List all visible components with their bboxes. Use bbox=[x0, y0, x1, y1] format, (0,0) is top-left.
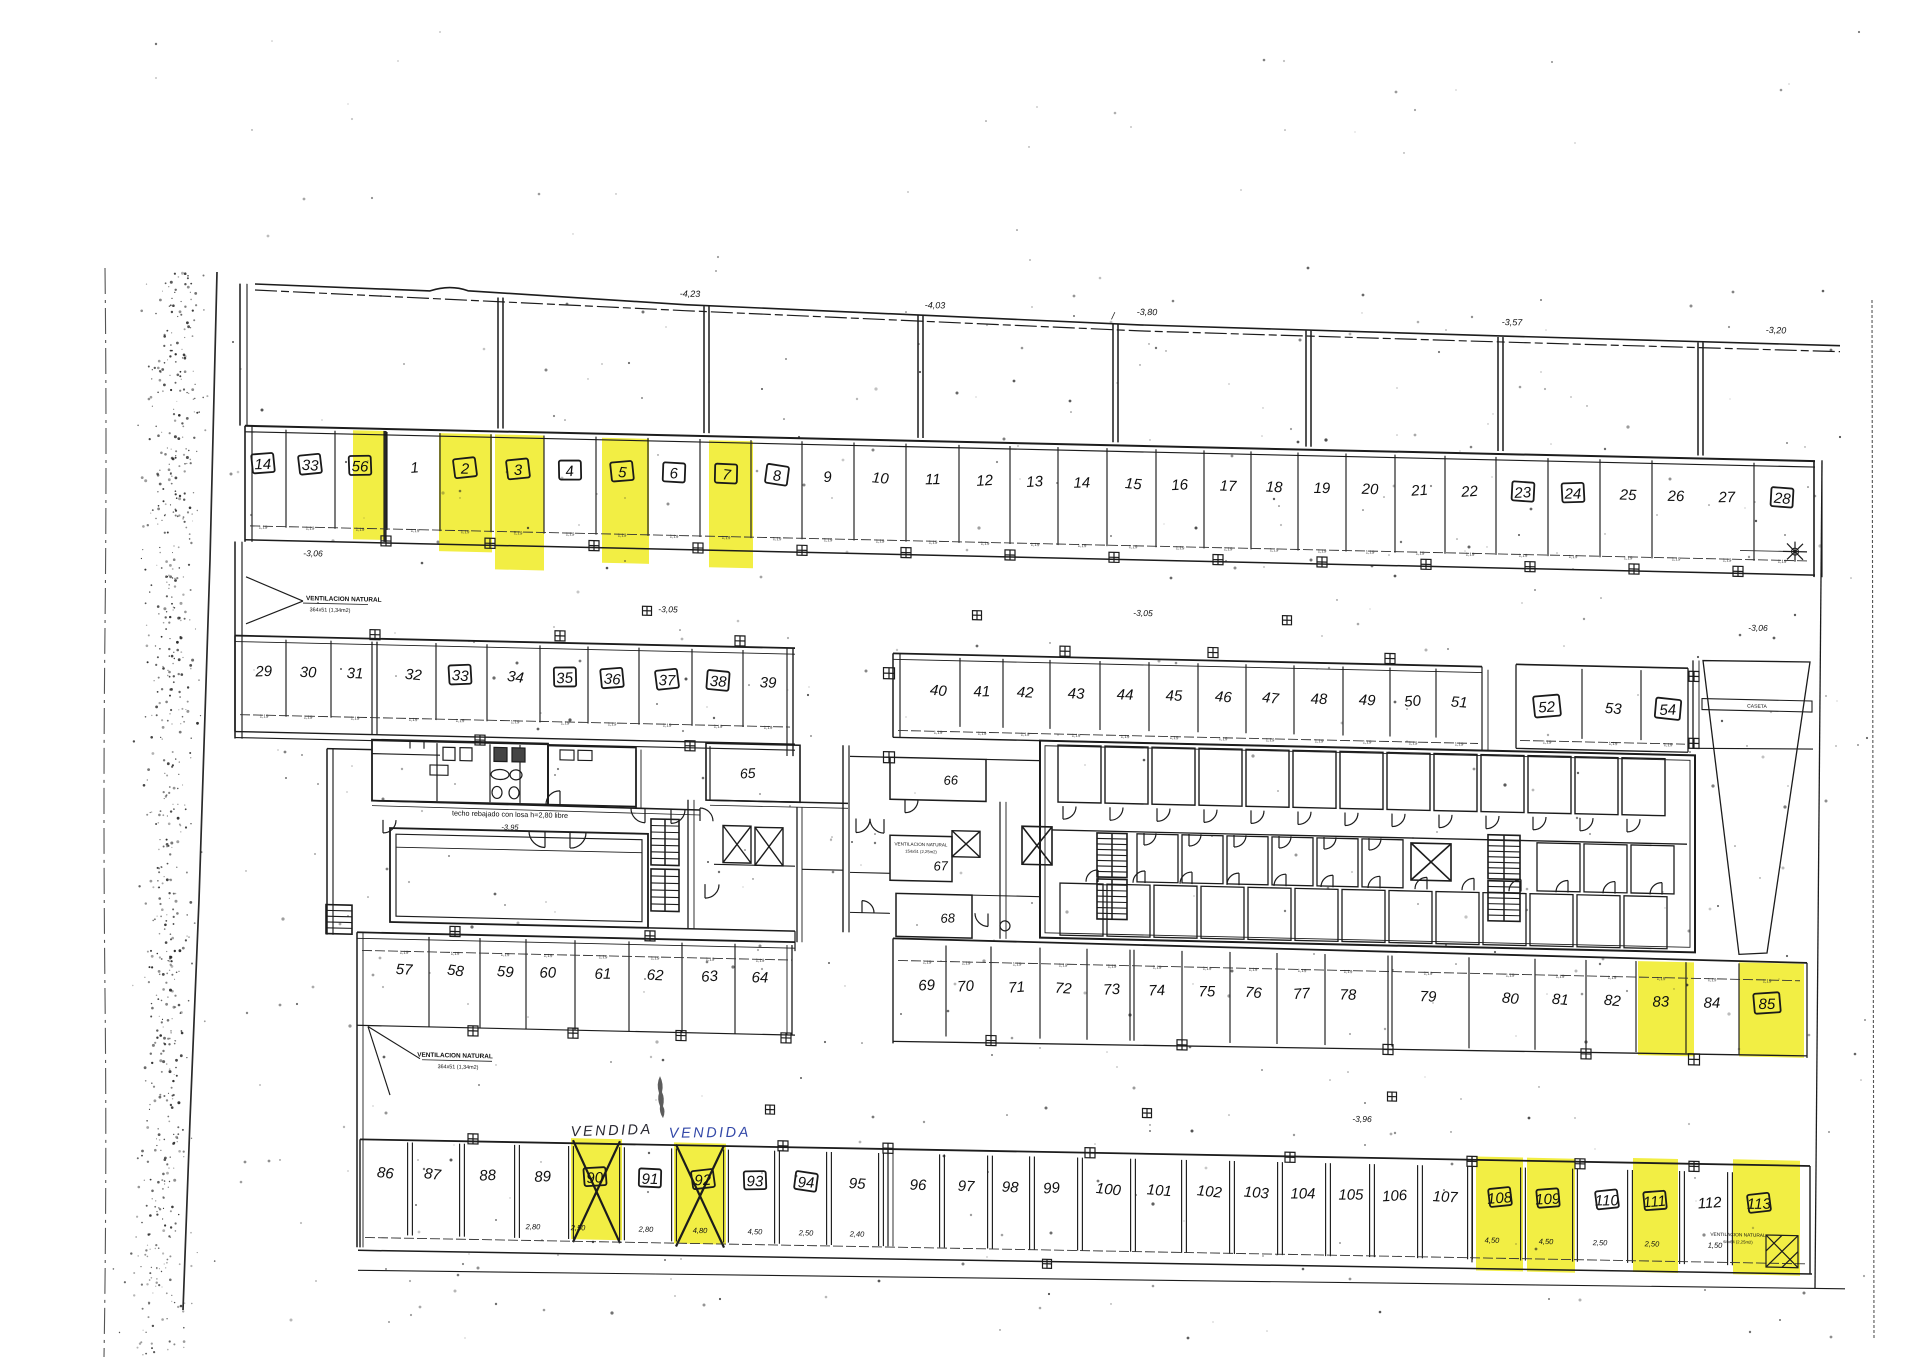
svg-text:18: 18 bbox=[1266, 479, 1284, 497]
svg-text:1,19: 1,19 bbox=[1031, 542, 1040, 547]
svg-text:1,19: 1,19 bbox=[1657, 976, 1666, 981]
svg-text:1,19: 1,19 bbox=[1298, 968, 1307, 973]
svg-text:79: 79 bbox=[1420, 988, 1438, 1006]
svg-text:28: 28 bbox=[1772, 490, 1791, 508]
svg-text:1,19: 1,19 bbox=[1129, 544, 1138, 549]
svg-text:75: 75 bbox=[1198, 983, 1216, 1000]
svg-text:1,19: 1,19 bbox=[756, 958, 765, 963]
svg-text:93: 93 bbox=[746, 1173, 764, 1190]
svg-text:1,19: 1,19 bbox=[451, 951, 460, 956]
svg-text:-3,57: -3,57 bbox=[1502, 317, 1524, 327]
svg-text:-3,05: -3,05 bbox=[1133, 608, 1153, 618]
svg-text:-3,05: -3,05 bbox=[658, 604, 678, 614]
svg-text:1,19: 1,19 bbox=[1021, 732, 1030, 737]
svg-text:1,19: 1,19 bbox=[1624, 555, 1633, 560]
svg-text:25: 25 bbox=[1619, 487, 1638, 505]
svg-text:4,50: 4,50 bbox=[1485, 1236, 1500, 1245]
svg-text:1,19: 1,19 bbox=[651, 955, 660, 960]
svg-text:88: 88 bbox=[479, 1167, 498, 1185]
svg-text:81: 81 bbox=[1551, 991, 1569, 1009]
svg-text:1,19: 1,19 bbox=[501, 952, 510, 957]
svg-text:1,19: 1,19 bbox=[356, 527, 365, 532]
svg-text:1,19: 1,19 bbox=[1072, 733, 1081, 738]
svg-text:1,19: 1,19 bbox=[962, 960, 971, 965]
svg-text:102: 102 bbox=[1196, 1182, 1223, 1202]
svg-text:1,19: 1,19 bbox=[714, 724, 723, 729]
svg-text:2: 2 bbox=[460, 461, 470, 478]
svg-text:51: 51 bbox=[1450, 694, 1467, 712]
svg-text:1,19: 1,19 bbox=[1224, 546, 1233, 551]
svg-text:1,19: 1,19 bbox=[351, 716, 360, 721]
svg-text:85: 85 bbox=[1758, 996, 1776, 1013]
svg-text:91: 91 bbox=[642, 1171, 659, 1188]
svg-text:1,19: 1,19 bbox=[400, 950, 409, 955]
svg-text:4,50: 4,50 bbox=[1539, 1237, 1554, 1246]
svg-text:1,19: 1,19 bbox=[561, 720, 570, 725]
svg-text:95: 95 bbox=[849, 1175, 867, 1193]
svg-text:1,19: 1,19 bbox=[1506, 973, 1515, 978]
svg-text:46: 46 bbox=[1214, 688, 1233, 707]
svg-text:98: 98 bbox=[1002, 1179, 1020, 1197]
svg-text:17: 17 bbox=[1220, 478, 1238, 496]
svg-text:37: 37 bbox=[659, 672, 676, 689]
svg-text:43: 43 bbox=[1068, 685, 1086, 703]
svg-text:4,50: 4,50 bbox=[748, 1227, 763, 1236]
svg-text:2,40: 2,40 bbox=[849, 1229, 865, 1238]
svg-text:14: 14 bbox=[254, 456, 271, 473]
svg-text:1,19: 1,19 bbox=[1363, 739, 1372, 744]
svg-text:1,19: 1,19 bbox=[304, 715, 313, 720]
svg-text:1,19: 1,19 bbox=[981, 541, 990, 546]
svg-text:1,19: 1,19 bbox=[1708, 977, 1717, 982]
svg-text:-3,96: -3,96 bbox=[1352, 1114, 1372, 1124]
svg-text:74: 74 bbox=[1148, 982, 1166, 1000]
svg-text:83: 83 bbox=[1652, 993, 1670, 1010]
svg-text:71: 71 bbox=[1007, 979, 1025, 997]
svg-text:1,19: 1,19 bbox=[409, 717, 418, 722]
svg-text:1,19: 1,19 bbox=[1556, 974, 1565, 979]
svg-text:45: 45 bbox=[1166, 688, 1183, 705]
svg-text:24: 24 bbox=[1563, 486, 1581, 503]
svg-text:1,19: 1,19 bbox=[306, 526, 315, 531]
svg-text:-4,03: -4,03 bbox=[925, 300, 946, 310]
svg-text:48: 48 bbox=[1311, 691, 1328, 708]
svg-text:1,19: 1,19 bbox=[599, 954, 608, 959]
svg-text:23: 23 bbox=[1513, 484, 1532, 502]
svg-text:42: 42 bbox=[1017, 684, 1035, 702]
svg-text:1,19: 1,19 bbox=[978, 731, 987, 736]
svg-text:29: 29 bbox=[254, 663, 273, 681]
svg-text:30: 30 bbox=[300, 664, 318, 682]
svg-text:1,19: 1,19 bbox=[1121, 734, 1130, 739]
svg-text:72: 72 bbox=[1054, 980, 1072, 998]
svg-text:63: 63 bbox=[700, 968, 719, 986]
svg-text:50: 50 bbox=[1403, 692, 1422, 710]
svg-text:1,19: 1,19 bbox=[1608, 975, 1617, 980]
svg-text:364x51 (1,34m2): 364x51 (1,34m2) bbox=[310, 607, 351, 614]
svg-text:78: 78 bbox=[1340, 986, 1358, 1003]
svg-text:-3,06: -3,06 bbox=[1748, 623, 1768, 633]
svg-text:34: 34 bbox=[506, 668, 524, 687]
svg-text:80: 80 bbox=[1501, 989, 1520, 1008]
svg-text:84: 84 bbox=[1703, 995, 1720, 1012]
svg-text:101: 101 bbox=[1146, 1181, 1172, 1200]
svg-text:1,19: 1,19 bbox=[923, 960, 932, 965]
svg-text:66: 66 bbox=[943, 772, 959, 787]
svg-text:2,50: 2,50 bbox=[798, 1228, 814, 1237]
svg-text:1,50: 1,50 bbox=[1708, 1241, 1723, 1250]
svg-text:1,19: 1,19 bbox=[1013, 962, 1022, 967]
svg-text:1,19: 1,19 bbox=[1763, 978, 1772, 983]
svg-text:1,19: 1,19 bbox=[764, 725, 773, 730]
svg-text:1,19: 1,19 bbox=[1059, 963, 1068, 968]
svg-text:20: 20 bbox=[1361, 481, 1380, 499]
svg-text:1,19: 1,19 bbox=[1543, 739, 1552, 744]
svg-text:4,80: 4,80 bbox=[693, 1226, 708, 1235]
svg-text:67: 67 bbox=[933, 858, 949, 873]
svg-text:39: 39 bbox=[760, 674, 778, 692]
svg-text:1,19: 1,19 bbox=[1778, 559, 1787, 564]
svg-text:90: 90 bbox=[586, 1169, 604, 1187]
svg-text:-3,80: -3,80 bbox=[1137, 307, 1158, 317]
svg-text:35: 35 bbox=[556, 669, 575, 687]
svg-text:41: 41 bbox=[973, 683, 990, 700]
svg-text:47: 47 bbox=[1261, 689, 1280, 708]
svg-text:1,19: 1,19 bbox=[1609, 741, 1618, 746]
svg-text:1,19: 1,19 bbox=[1723, 558, 1732, 563]
svg-text:62: 62 bbox=[647, 967, 665, 985]
svg-text:15: 15 bbox=[1124, 475, 1142, 493]
svg-text:-4,23: -4,23 bbox=[680, 289, 701, 299]
svg-text:12: 12 bbox=[976, 472, 995, 490]
svg-text:1,19: 1,19 bbox=[1664, 742, 1673, 747]
svg-text:33: 33 bbox=[302, 457, 320, 475]
svg-text:89: 89 bbox=[534, 1168, 552, 1186]
svg-text:1,19: 1,19 bbox=[566, 531, 575, 536]
svg-text:97: 97 bbox=[958, 1178, 976, 1196]
svg-text:1,19: 1,19 bbox=[1315, 738, 1324, 743]
svg-text:1,19: 1,19 bbox=[773, 536, 782, 541]
svg-text:1,19: 1,19 bbox=[929, 540, 938, 545]
svg-text:1,19: 1,19 bbox=[876, 538, 885, 543]
svg-text:VENDIDA: VENDIDA bbox=[669, 1125, 751, 1142]
svg-text:11: 11 bbox=[925, 471, 941, 488]
svg-text:112: 112 bbox=[1697, 1194, 1723, 1212]
svg-text:44: 44 bbox=[1117, 686, 1134, 704]
svg-text:64x64 (2,25m2): 64x64 (2,25m2) bbox=[1723, 1239, 1753, 1245]
svg-text:1,19: 1,19 bbox=[1078, 543, 1087, 548]
svg-text:22: 22 bbox=[1460, 483, 1480, 501]
svg-text:77: 77 bbox=[1293, 985, 1312, 1003]
svg-text:60: 60 bbox=[539, 964, 557, 981]
svg-text:31: 31 bbox=[347, 665, 364, 682]
svg-text:1,19: 1,19 bbox=[1366, 549, 1375, 554]
svg-text:103: 103 bbox=[1243, 1183, 1270, 1202]
svg-text:69: 69 bbox=[918, 977, 936, 995]
svg-text:56: 56 bbox=[352, 458, 369, 476]
svg-text:73: 73 bbox=[1103, 981, 1122, 999]
svg-text:16: 16 bbox=[1171, 476, 1189, 494]
svg-text:64: 64 bbox=[752, 969, 769, 986]
svg-text:VENDIDA: VENDIDA bbox=[570, 1122, 653, 1140]
svg-text:54: 54 bbox=[1659, 702, 1677, 719]
svg-text:364x51 (1,34m2): 364x51 (1,34m2) bbox=[438, 1064, 479, 1071]
svg-text:1,19: 1,19 bbox=[544, 953, 553, 958]
svg-text:1,19: 1,19 bbox=[1108, 964, 1117, 969]
svg-text:1,19: 1,19 bbox=[1153, 965, 1162, 970]
svg-text:105: 105 bbox=[1338, 1187, 1364, 1204]
svg-text:38: 38 bbox=[710, 673, 728, 691]
svg-text:96: 96 bbox=[910, 1177, 927, 1194]
svg-text:100: 100 bbox=[1095, 1180, 1122, 1200]
svg-text:36: 36 bbox=[603, 670, 621, 688]
svg-text:1,19: 1,19 bbox=[1176, 545, 1185, 550]
svg-text:14: 14 bbox=[1073, 474, 1090, 491]
svg-text:1,19: 1,19 bbox=[722, 535, 731, 540]
svg-text:1,19: 1,19 bbox=[618, 533, 627, 538]
svg-text:1,19: 1,19 bbox=[663, 723, 672, 728]
svg-text:1,19: 1,19 bbox=[461, 529, 470, 534]
svg-text:53: 53 bbox=[1604, 700, 1622, 718]
svg-text:82: 82 bbox=[1603, 992, 1622, 1011]
svg-text:99: 99 bbox=[1042, 1179, 1061, 1197]
svg-text:26: 26 bbox=[1667, 488, 1686, 505]
svg-text:27: 27 bbox=[1717, 489, 1736, 506]
svg-text:3: 3 bbox=[514, 462, 523, 479]
svg-text:8: 8 bbox=[773, 468, 782, 485]
svg-text:87: 87 bbox=[423, 1165, 442, 1184]
svg-text:1,19: 1,19 bbox=[934, 730, 943, 735]
svg-text:1,19: 1,19 bbox=[259, 525, 268, 530]
svg-text:4: 4 bbox=[565, 463, 575, 480]
svg-text:1: 1 bbox=[410, 459, 420, 477]
svg-text:1,19: 1,19 bbox=[1266, 737, 1275, 742]
svg-text:2,50: 2,50 bbox=[1592, 1238, 1608, 1247]
svg-text:70: 70 bbox=[957, 977, 976, 995]
svg-text:1,19: 1,19 bbox=[260, 714, 269, 719]
svg-text:1,19: 1,19 bbox=[1416, 551, 1425, 556]
svg-text:1,19: 1,19 bbox=[1170, 735, 1179, 740]
svg-text:1,19: 1,19 bbox=[511, 719, 520, 724]
svg-text:2,80: 2,80 bbox=[638, 1225, 654, 1234]
svg-text:1,19: 1,19 bbox=[1270, 547, 1279, 552]
svg-text:1,19: 1,19 bbox=[411, 528, 420, 533]
svg-text:49: 49 bbox=[1359, 692, 1377, 710]
svg-text:2,50: 2,50 bbox=[1644, 1239, 1660, 1248]
svg-text:-3,06: -3,06 bbox=[303, 548, 323, 558]
svg-text:1,19: 1,19 bbox=[1203, 966, 1212, 971]
svg-text:33: 33 bbox=[451, 667, 469, 685]
svg-text:1,19: 1,19 bbox=[608, 721, 617, 726]
svg-text:76: 76 bbox=[1244, 984, 1263, 1003]
svg-text:1,19: 1,19 bbox=[1409, 740, 1418, 745]
svg-text:86: 86 bbox=[376, 1164, 395, 1183]
svg-text:CASETA: CASETA bbox=[1747, 704, 1767, 710]
svg-text:32: 32 bbox=[404, 666, 423, 685]
svg-text:1,19: 1,19 bbox=[1424, 971, 1433, 976]
svg-text:6: 6 bbox=[669, 465, 679, 482]
svg-text:2,50: 2,50 bbox=[570, 1223, 586, 1232]
svg-text:59: 59 bbox=[496, 963, 514, 981]
svg-text:1,19: 1,19 bbox=[1672, 556, 1681, 561]
svg-text:1,19: 1,19 bbox=[1318, 548, 1327, 553]
svg-text:1,19: 1,19 bbox=[1344, 969, 1353, 974]
svg-text:10: 10 bbox=[871, 469, 890, 488]
svg-text:106: 106 bbox=[1381, 1187, 1408, 1206]
svg-text:1,19: 1,19 bbox=[1219, 736, 1228, 741]
svg-text:19: 19 bbox=[1313, 480, 1331, 497]
svg-text:21: 21 bbox=[1410, 482, 1429, 500]
svg-text:1,19: 1,19 bbox=[1249, 967, 1258, 972]
svg-text:13: 13 bbox=[1026, 473, 1045, 491]
svg-text:VENTILACION NATURAL: VENTILACION NATURAL bbox=[1710, 1232, 1766, 1239]
svg-text:-3,20: -3,20 bbox=[1766, 325, 1787, 335]
svg-text:1,19: 1,19 bbox=[456, 718, 465, 723]
svg-text:1,19: 1,19 bbox=[1569, 554, 1578, 559]
svg-text:1,19: 1,19 bbox=[670, 534, 679, 539]
svg-text:1,19: 1,19 bbox=[824, 537, 833, 542]
svg-text:68: 68 bbox=[940, 910, 956, 926]
svg-text:154x51 (2,25m2): 154x51 (2,25m2) bbox=[905, 849, 937, 855]
svg-text:1,19: 1,19 bbox=[1455, 741, 1464, 746]
svg-text:104: 104 bbox=[1290, 1186, 1315, 1203]
svg-text:1,19: 1,19 bbox=[1519, 553, 1528, 558]
svg-text:107: 107 bbox=[1432, 1188, 1458, 1206]
svg-text:61: 61 bbox=[594, 966, 611, 983]
svg-text:58: 58 bbox=[446, 962, 465, 981]
svg-text:40: 40 bbox=[929, 682, 948, 701]
svg-text:65: 65 bbox=[739, 765, 756, 782]
svg-text:52: 52 bbox=[1538, 699, 1556, 717]
svg-text:2,80: 2,80 bbox=[525, 1222, 541, 1231]
svg-text:57: 57 bbox=[396, 961, 414, 979]
svg-text:1,19: 1,19 bbox=[1466, 552, 1475, 557]
